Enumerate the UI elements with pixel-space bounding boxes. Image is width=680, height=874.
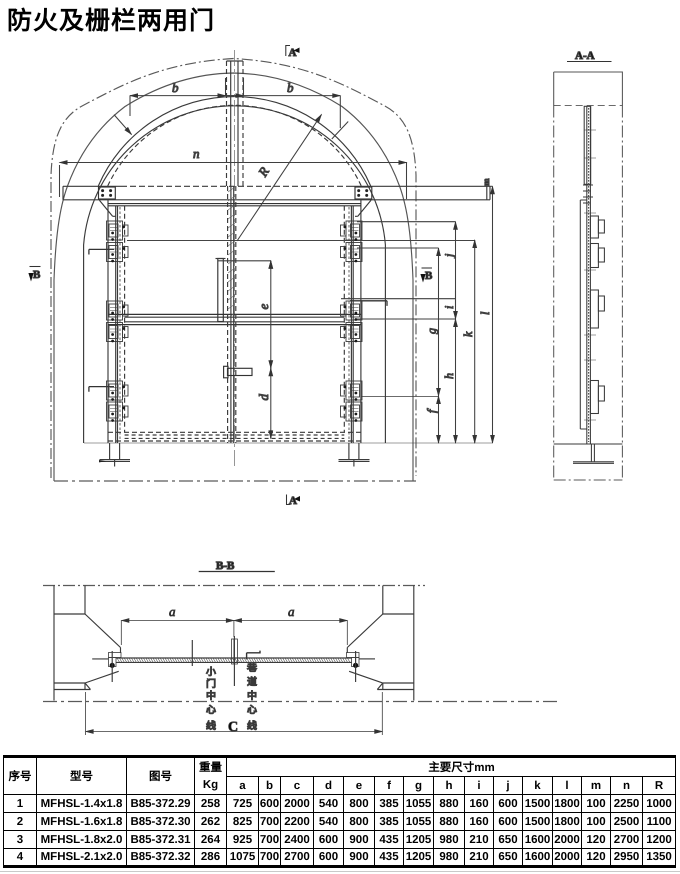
svg-text:中: 中 xyxy=(206,690,216,702)
svg-text:中: 中 xyxy=(247,690,257,702)
svg-text:门: 门 xyxy=(206,678,216,690)
svg-text:线: 线 xyxy=(247,720,257,732)
svg-text:m: m xyxy=(481,178,491,186)
svg-text:g: g xyxy=(425,328,439,334)
svg-text:b: b xyxy=(287,80,294,95)
svg-text:C: C xyxy=(228,720,238,735)
svg-text:j: j xyxy=(442,253,456,259)
svg-text:a: a xyxy=(169,604,176,619)
svg-text:a: a xyxy=(288,604,295,619)
svg-text:心: 心 xyxy=(206,704,216,716)
svg-text:h: h xyxy=(442,373,456,379)
svg-text:心: 心 xyxy=(247,704,257,716)
svg-text:f: f xyxy=(425,408,439,413)
svg-text:B: B xyxy=(33,269,41,281)
svg-text:k: k xyxy=(461,331,475,337)
svg-text:R: R xyxy=(255,164,272,180)
svg-text:线: 线 xyxy=(206,720,216,732)
svg-text:小: 小 xyxy=(206,666,216,678)
svg-text:i: i xyxy=(442,306,456,309)
svg-text:A-A: A-A xyxy=(575,50,595,62)
svg-text:B-B: B-B xyxy=(216,560,235,572)
svg-text:A: A xyxy=(289,47,297,59)
svg-text:b: b xyxy=(172,80,179,95)
svg-text:d: d xyxy=(256,394,271,401)
svg-text:e: e xyxy=(256,304,271,310)
svg-text:B: B xyxy=(425,270,433,282)
svg-text:道: 道 xyxy=(247,676,257,688)
svg-text:A: A xyxy=(289,495,297,507)
svg-text:巷: 巷 xyxy=(247,662,257,674)
svg-text:l: l xyxy=(478,311,492,315)
svg-text:n: n xyxy=(193,146,200,161)
